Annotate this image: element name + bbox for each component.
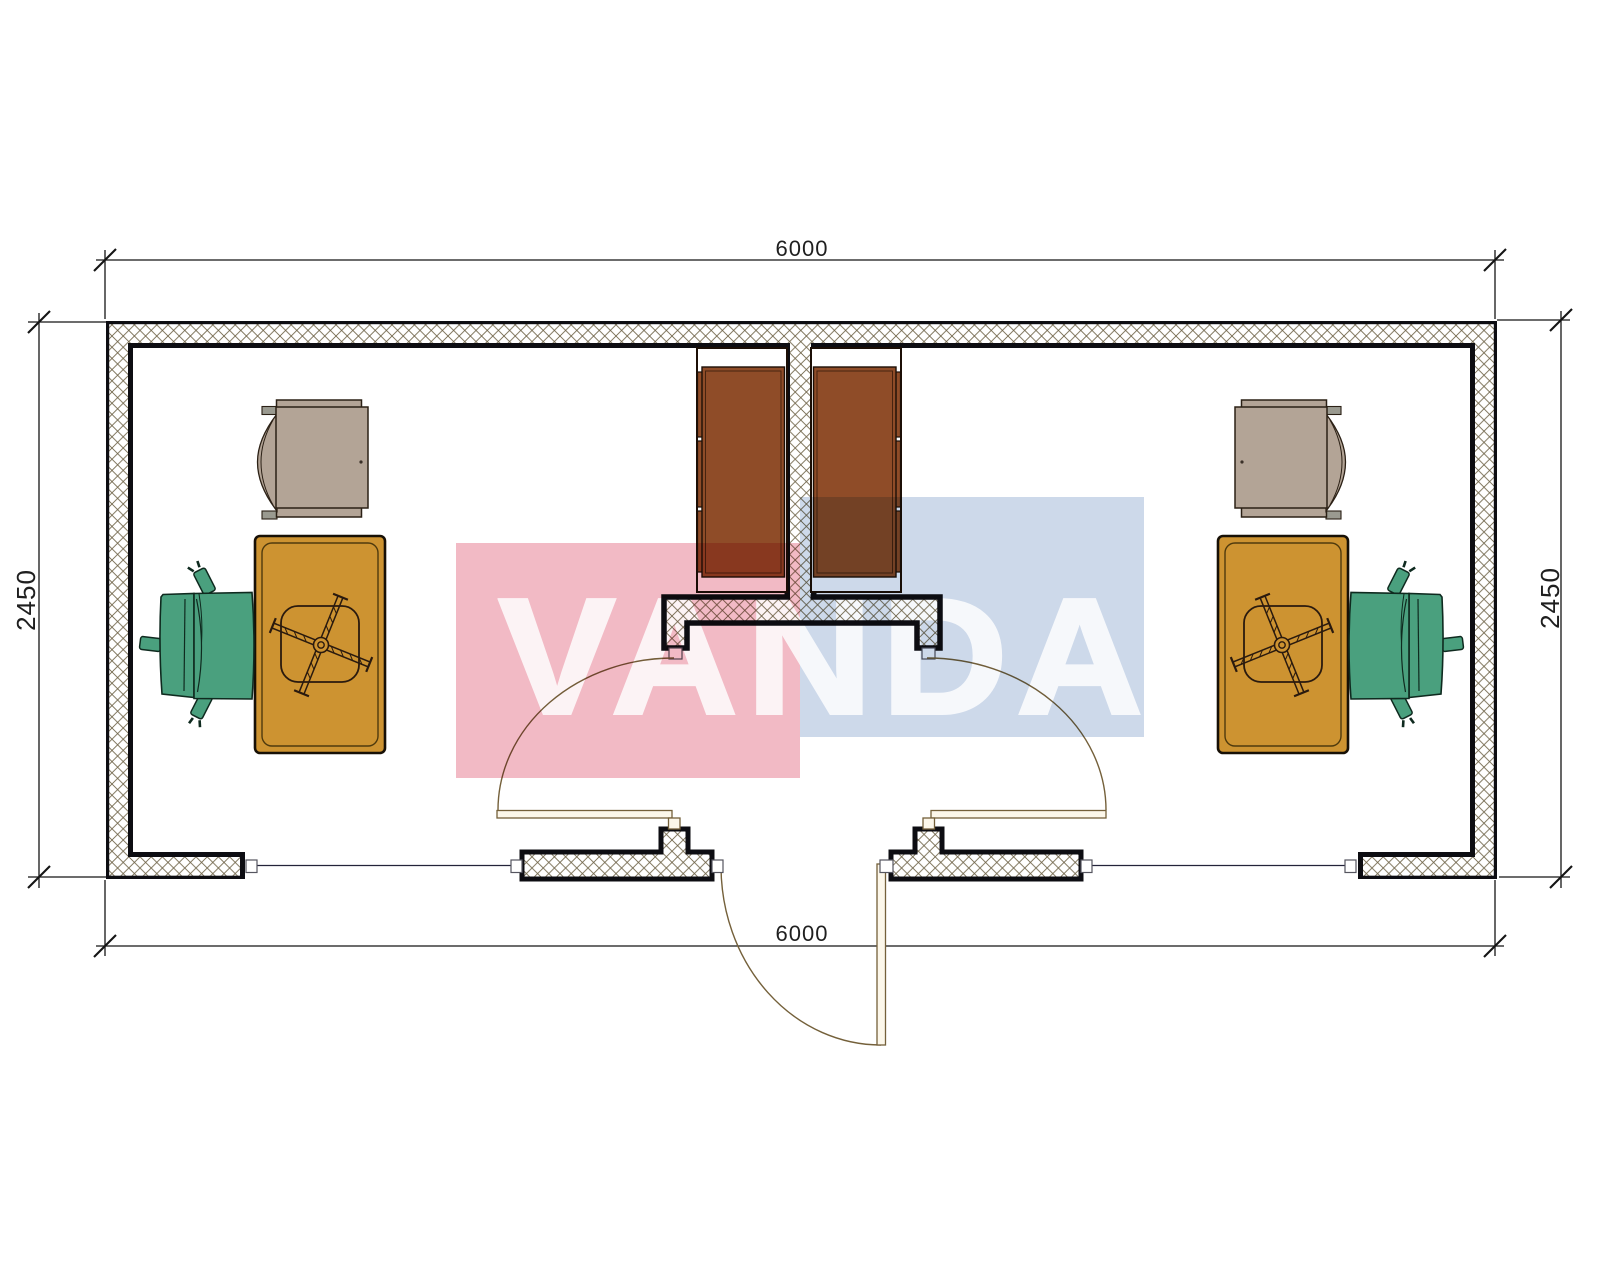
svg-text:2450: 2450 (11, 569, 41, 631)
svg-text:6000: 6000 (776, 921, 829, 946)
svg-text:6000: 6000 (776, 236, 829, 261)
svg-text:2450: 2450 (1535, 567, 1565, 629)
